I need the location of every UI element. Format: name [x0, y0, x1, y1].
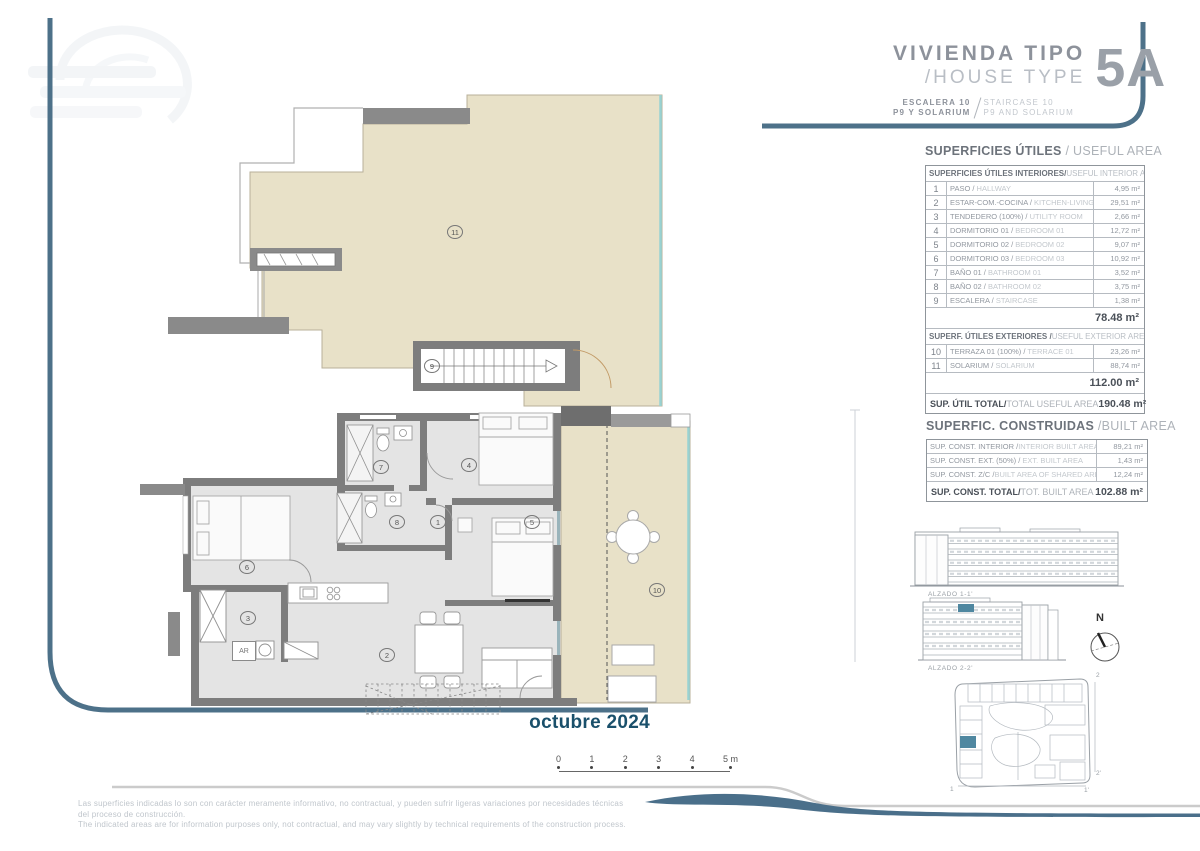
- table-row: 1PASO / HALLWAY4,95 m²: [926, 182, 1144, 196]
- title-block: VIVIENDA TIPO /HOUSE TYPE 5A: [893, 42, 1153, 94]
- scale-baseline: [559, 771, 730, 772]
- parapet-wall: [363, 108, 470, 124]
- built-total-row: SUP. CONST. TOTAL/TOT. BUILT AREA 102.88…: [927, 482, 1147, 501]
- useful-total-value: 190.48 m²: [1098, 398, 1146, 410]
- table-row: 9ESCALERA / STAIRCASE1,38 m²: [926, 294, 1144, 308]
- section-mark: 2': [1096, 770, 1101, 777]
- disclaimer-line-en: The indicated areas are for information …: [78, 820, 626, 831]
- exterior-subtotal: 112.00 m²: [926, 373, 1144, 394]
- floor-label-es: P9 Y SOLARIUM: [893, 108, 971, 118]
- room-label-terrace: 10: [649, 583, 665, 597]
- highlighted-unit-siteplan: [960, 736, 976, 748]
- terrace: [561, 421, 690, 703]
- useful-area-title: SUPERFICIES ÚTILES / USEFUL AREA: [925, 144, 1162, 158]
- useful-area-table: SUPERFICIES ÚTILES INTERIORES/ USEFUL IN…: [925, 165, 1145, 414]
- section-mark: 1': [1084, 787, 1089, 794]
- table-row: SUP. CONST. INTERIOR /INTERIOR BUILT ARE…: [927, 440, 1147, 454]
- elevation-1-label: ALZADO 1-1': [928, 591, 973, 598]
- staircase-label-en: STAIRCASE 10: [984, 98, 1074, 108]
- north-label: N: [1096, 612, 1104, 624]
- title-sub-block: ESCALERA 10 P9 Y SOLARIUM STAIRCASE 10 P…: [893, 97, 1074, 119]
- room-label-hallway: 1: [430, 515, 446, 529]
- scale-tick: 2: [623, 754, 628, 769]
- room-label-bedroom03: 6: [239, 560, 255, 574]
- bed-bedroom-03: [193, 496, 290, 560]
- room-label-bath02: 8: [389, 515, 405, 529]
- scale-tick: 3: [656, 754, 661, 769]
- table-row: 10TERRAZA 01 (100%) / TERRACE 0123,26 m²: [926, 345, 1144, 359]
- table-row: 5DORMITORIO 02 / BEDROOM 029,07 m²: [926, 238, 1144, 252]
- exterior-header: SUPERF. ÚTILES EXTERIORES / USEFUL EXTER…: [926, 329, 1144, 345]
- house-type-title-en: /HOUSE TYPE: [893, 67, 1085, 89]
- terrace-table: [616, 520, 650, 554]
- scale-tick: 5 m: [723, 754, 738, 769]
- side-wall: [168, 317, 289, 334]
- appliance-label: AR: [232, 641, 256, 661]
- room-label-living: 2: [379, 648, 395, 662]
- disclaimer-line-es2: del proceso de construcción.: [78, 810, 626, 821]
- compass-rose: [1091, 633, 1119, 661]
- table-row: SUP. CONST. Z/C /BUILT AREA OF SHARED AR…: [927, 468, 1147, 482]
- site-plan: [955, 679, 1095, 787]
- useful-total-row: SUP. ÚTIL TOTAL/TOTAL USEFUL AREA 190.48…: [926, 394, 1144, 413]
- room-label-utility: 3: [240, 611, 256, 625]
- built-total-value: 102.88 m²: [1095, 486, 1143, 498]
- table-row: 8BAÑO 02 / BATHROOM 023,75 m²: [926, 280, 1144, 294]
- interior-subtotal: 78.48 m²: [926, 308, 1144, 329]
- section-mark: 1: [950, 786, 954, 793]
- table-row: 2ESTAR-COM.-COCINA / KITCHEN-LIVING29,51…: [926, 196, 1144, 210]
- solarium-plan: [168, 95, 662, 406]
- vent-window: [250, 248, 342, 271]
- kitchen-counter: [288, 583, 388, 603]
- bed-bedroom-01: [479, 413, 553, 485]
- room-label-stair: 9: [424, 359, 440, 373]
- staircase-label-es: ESCALERA 10: [893, 98, 971, 108]
- elevation-2-label: ALZADO 2-2': [928, 665, 973, 672]
- built-area-title: SUPERFIC. CONSTRUIDAS /BUILT AREA: [926, 419, 1176, 433]
- plan-sheet: VIVIENDA TIPO /HOUSE TYPE 5A ESCALERA 10…: [0, 0, 1200, 851]
- table-row: 11SOLARIUM / SOLARIUM88,74 m²: [926, 359, 1144, 373]
- elevation-1: [910, 528, 1124, 586]
- floor-label-en: P9 AND SOLARIUM: [984, 108, 1074, 118]
- scale-tick: 4: [690, 754, 695, 769]
- scale-tick: 0: [556, 754, 561, 769]
- disclaimer-text: Las superficies indicadas lo son con car…: [78, 799, 626, 831]
- room-label-bath01: 7: [373, 460, 389, 474]
- room-label-bedroom02: 5: [524, 515, 540, 529]
- table-row: SUP. CONST. EXT. (50%) / EXT. BUILT AREA…: [927, 454, 1147, 468]
- date-label: octubre 2024: [430, 712, 650, 734]
- interior-header: SUPERFICIES ÚTILES INTERIORES/ USEFUL IN…: [926, 166, 1144, 182]
- highlighted-unit-elevation: [958, 604, 974, 612]
- house-type-title-es: VIVIENDA TIPO: [893, 42, 1085, 66]
- house-type-code: 5A: [1095, 42, 1166, 94]
- slash-divider: [973, 97, 981, 118]
- built-area-table: SUP. CONST. INTERIOR /INTERIOR BUILT ARE…: [926, 439, 1148, 502]
- table-row: 3TENDEDERO (100%) / UTILITY ROOM2,66 m²: [926, 210, 1144, 224]
- elevation-2: [918, 598, 1066, 660]
- table-row: 6DORMITORIO 03 / BEDROOM 0310,92 m²: [926, 252, 1144, 266]
- lintel: [561, 406, 611, 426]
- table-row: 4DORMITORIO 01 / BEDROOM 0112,72 m²: [926, 224, 1144, 238]
- scale-tick: 1: [589, 754, 594, 769]
- section-mark: 2: [1096, 672, 1100, 679]
- disclaimer-line-es1: Las superficies indicadas lo son con car…: [78, 799, 626, 810]
- table-row: 7BAÑO 01 / BATHROOM 013,52 m²: [926, 266, 1144, 280]
- room-label-bedroom01: 4: [461, 458, 477, 472]
- scale-bar: 0 1 2 3 4 5 m: [556, 754, 738, 776]
- room-label-solarium: 11: [447, 225, 463, 239]
